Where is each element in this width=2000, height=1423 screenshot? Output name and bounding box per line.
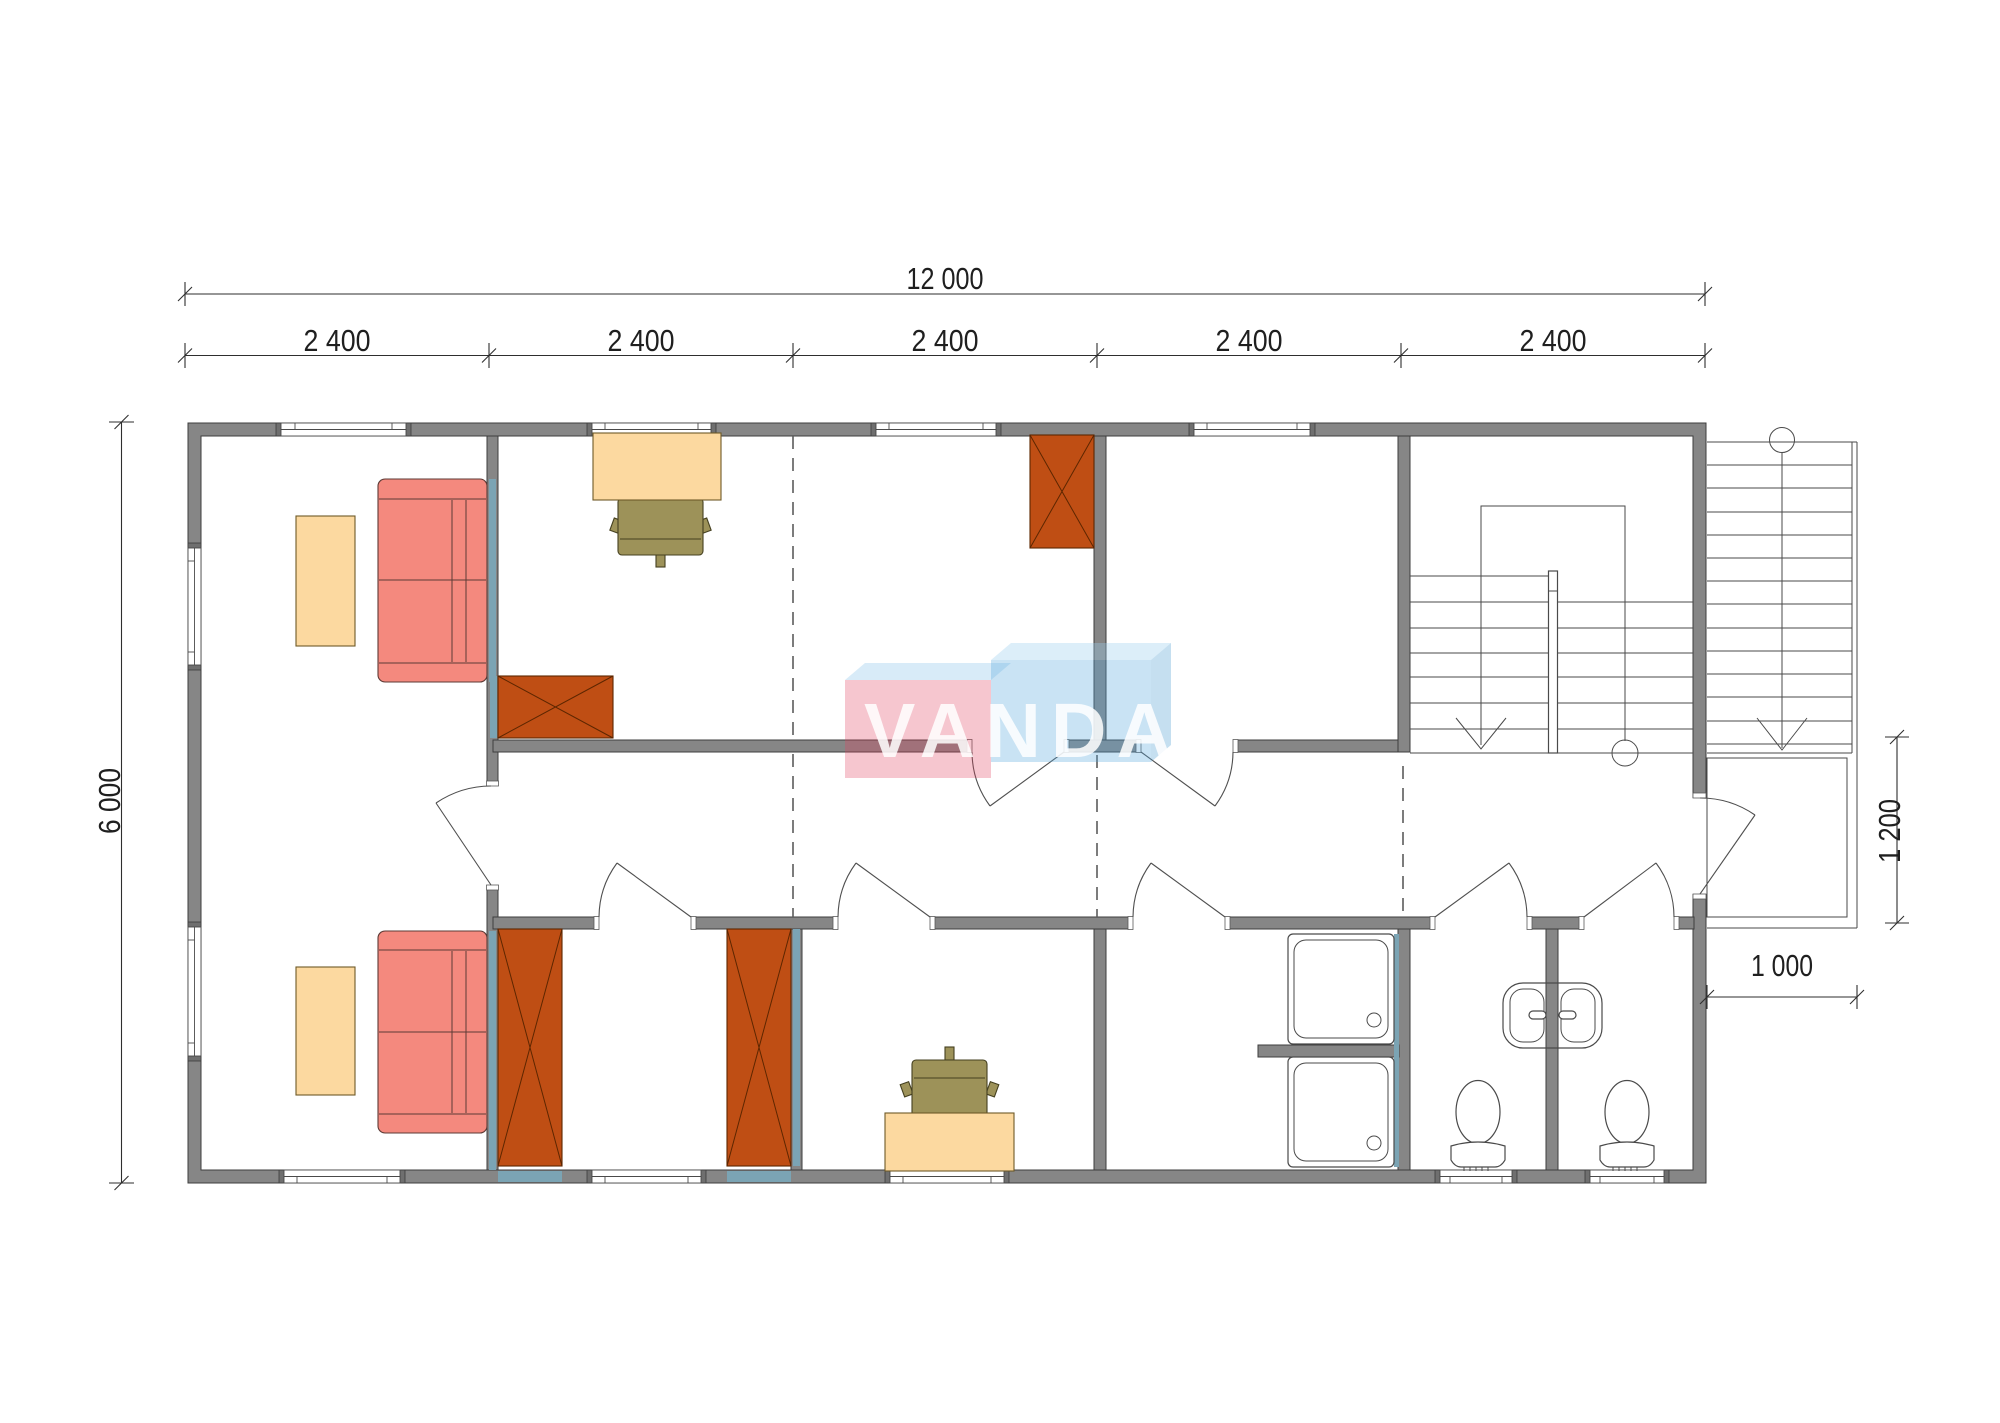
svg-text:VANDA: VANDA (864, 688, 1182, 774)
svg-text:1 000: 1 000 (1751, 948, 1813, 983)
svg-text:2 400: 2 400 (912, 323, 979, 358)
svg-text:12 000: 12 000 (907, 261, 984, 296)
svg-text:1 200: 1 200 (1872, 799, 1907, 863)
svg-text:2 400: 2 400 (304, 323, 371, 358)
svg-text:2 400: 2 400 (608, 323, 675, 358)
svg-text:6 000: 6 000 (92, 768, 127, 834)
svg-text:2 400: 2 400 (1216, 323, 1283, 358)
svg-text:2 400: 2 400 (1520, 323, 1587, 358)
